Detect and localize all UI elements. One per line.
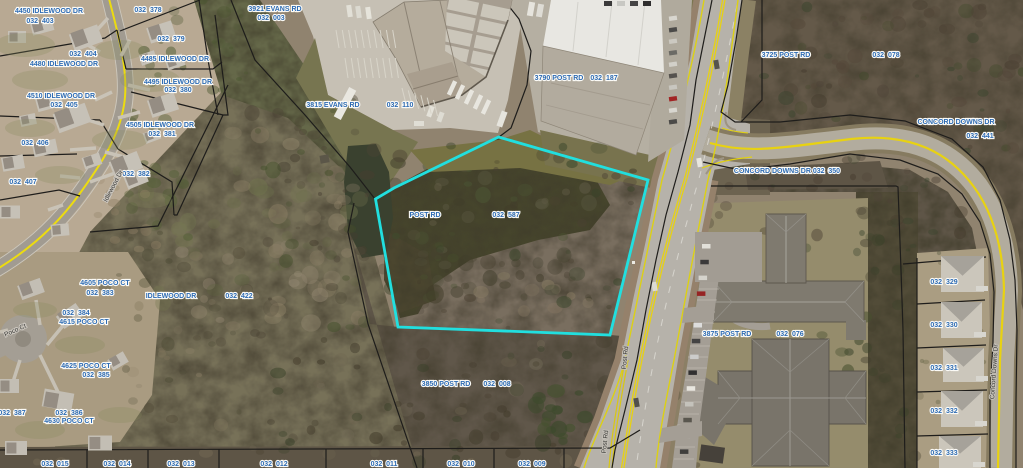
svg-text:032 013: 032 013 <box>167 461 194 468</box>
svg-text:4495 IDLEWOOD DR: 4495 IDLEWOOD DR <box>144 79 212 86</box>
svg-text:032 381: 032 381 <box>148 131 175 138</box>
svg-text:032 405: 032 405 <box>50 102 77 109</box>
svg-text:032 422: 032 422 <box>225 293 252 300</box>
svg-text:032 330: 032 330 <box>930 322 957 329</box>
svg-text:CONCORD DOWNS DR: CONCORD DOWNS DR <box>918 119 995 126</box>
svg-text:032 404: 032 404 <box>69 51 96 58</box>
svg-text:032 383: 032 383 <box>86 290 113 297</box>
svg-text:032 387: 032 387 <box>0 410 26 417</box>
svg-text:032 386: 032 386 <box>55 410 82 417</box>
svg-text:032 333: 032 333 <box>930 450 957 457</box>
svg-text:032 406: 032 406 <box>21 140 48 147</box>
svg-text:3725 POST RD: 3725 POST RD <box>762 52 811 59</box>
svg-text:CONCORD DOWNS DR 032 350: CONCORD DOWNS DR 032 350 <box>734 168 840 175</box>
svg-text:POST RD: POST RD <box>409 212 440 219</box>
svg-text:4510 IDLEWOOD DR: 4510 IDLEWOOD DR <box>27 93 95 100</box>
svg-text:032 012: 032 012 <box>260 461 287 468</box>
svg-text:032 003: 032 003 <box>257 15 284 22</box>
svg-text:032 331: 032 331 <box>930 365 957 372</box>
svg-text:032 380: 032 380 <box>164 87 191 94</box>
svg-text:4615 POCO CT: 4615 POCO CT <box>59 319 109 326</box>
svg-text:032 384: 032 384 <box>62 310 89 317</box>
svg-text:032 382: 032 382 <box>122 171 149 178</box>
svg-text:032 379: 032 379 <box>157 36 184 43</box>
svg-text:032 329: 032 329 <box>930 279 957 286</box>
svg-text:4480 IDLEWOOD DR: 4480 IDLEWOOD DR <box>30 61 98 68</box>
svg-text:032 008: 032 008 <box>483 381 510 388</box>
svg-text:032 441: 032 441 <box>966 133 993 140</box>
svg-text:032 014: 032 014 <box>103 461 130 468</box>
svg-text:032 010: 032 010 <box>447 461 474 468</box>
svg-text:4605 POCO CT: 4605 POCO CT <box>80 280 130 287</box>
svg-text:032 587: 032 587 <box>492 212 519 219</box>
svg-text:4630 POCO CT: 4630 POCO CT <box>44 418 94 425</box>
svg-text:032 110: 032 110 <box>387 102 414 109</box>
svg-text:3790 POST RD: 3790 POST RD <box>535 75 584 82</box>
svg-text:3850 POST RD: 3850 POST RD <box>422 381 471 388</box>
svg-text:032 011: 032 011 <box>371 461 398 468</box>
svg-text:4505 IDLEWOOD DR: 4505 IDLEWOOD DR <box>126 122 194 129</box>
svg-text:032 015: 032 015 <box>41 461 68 468</box>
svg-text:4485 IDLEWOOD DR: 4485 IDLEWOOD DR <box>141 56 209 63</box>
svg-text:032 403: 032 403 <box>26 18 53 25</box>
svg-text:4450 IDLEWOOD DR: 4450 IDLEWOOD DR <box>15 8 83 15</box>
svg-text:032 378: 032 378 <box>134 7 161 14</box>
svg-text:3875 POST RD: 3875 POST RD <box>703 331 752 338</box>
svg-text:IDLEWOOD DR: IDLEWOOD DR <box>146 293 197 300</box>
svg-text:032 385: 032 385 <box>82 372 109 379</box>
svg-text:4625 POCO CT: 4625 POCO CT <box>61 363 111 370</box>
svg-text:032 078: 032 078 <box>872 52 899 59</box>
svg-text:3921 EVANS RD: 3921 EVANS RD <box>248 6 301 13</box>
svg-text:032 009: 032 009 <box>518 461 545 468</box>
svg-text:032 407: 032 407 <box>9 179 36 186</box>
svg-text:032 076: 032 076 <box>776 331 803 338</box>
svg-text:032 332: 032 332 <box>930 408 957 415</box>
svg-text:3815 EVANS RD: 3815 EVANS RD <box>306 102 359 109</box>
svg-text:032 187: 032 187 <box>590 75 617 82</box>
